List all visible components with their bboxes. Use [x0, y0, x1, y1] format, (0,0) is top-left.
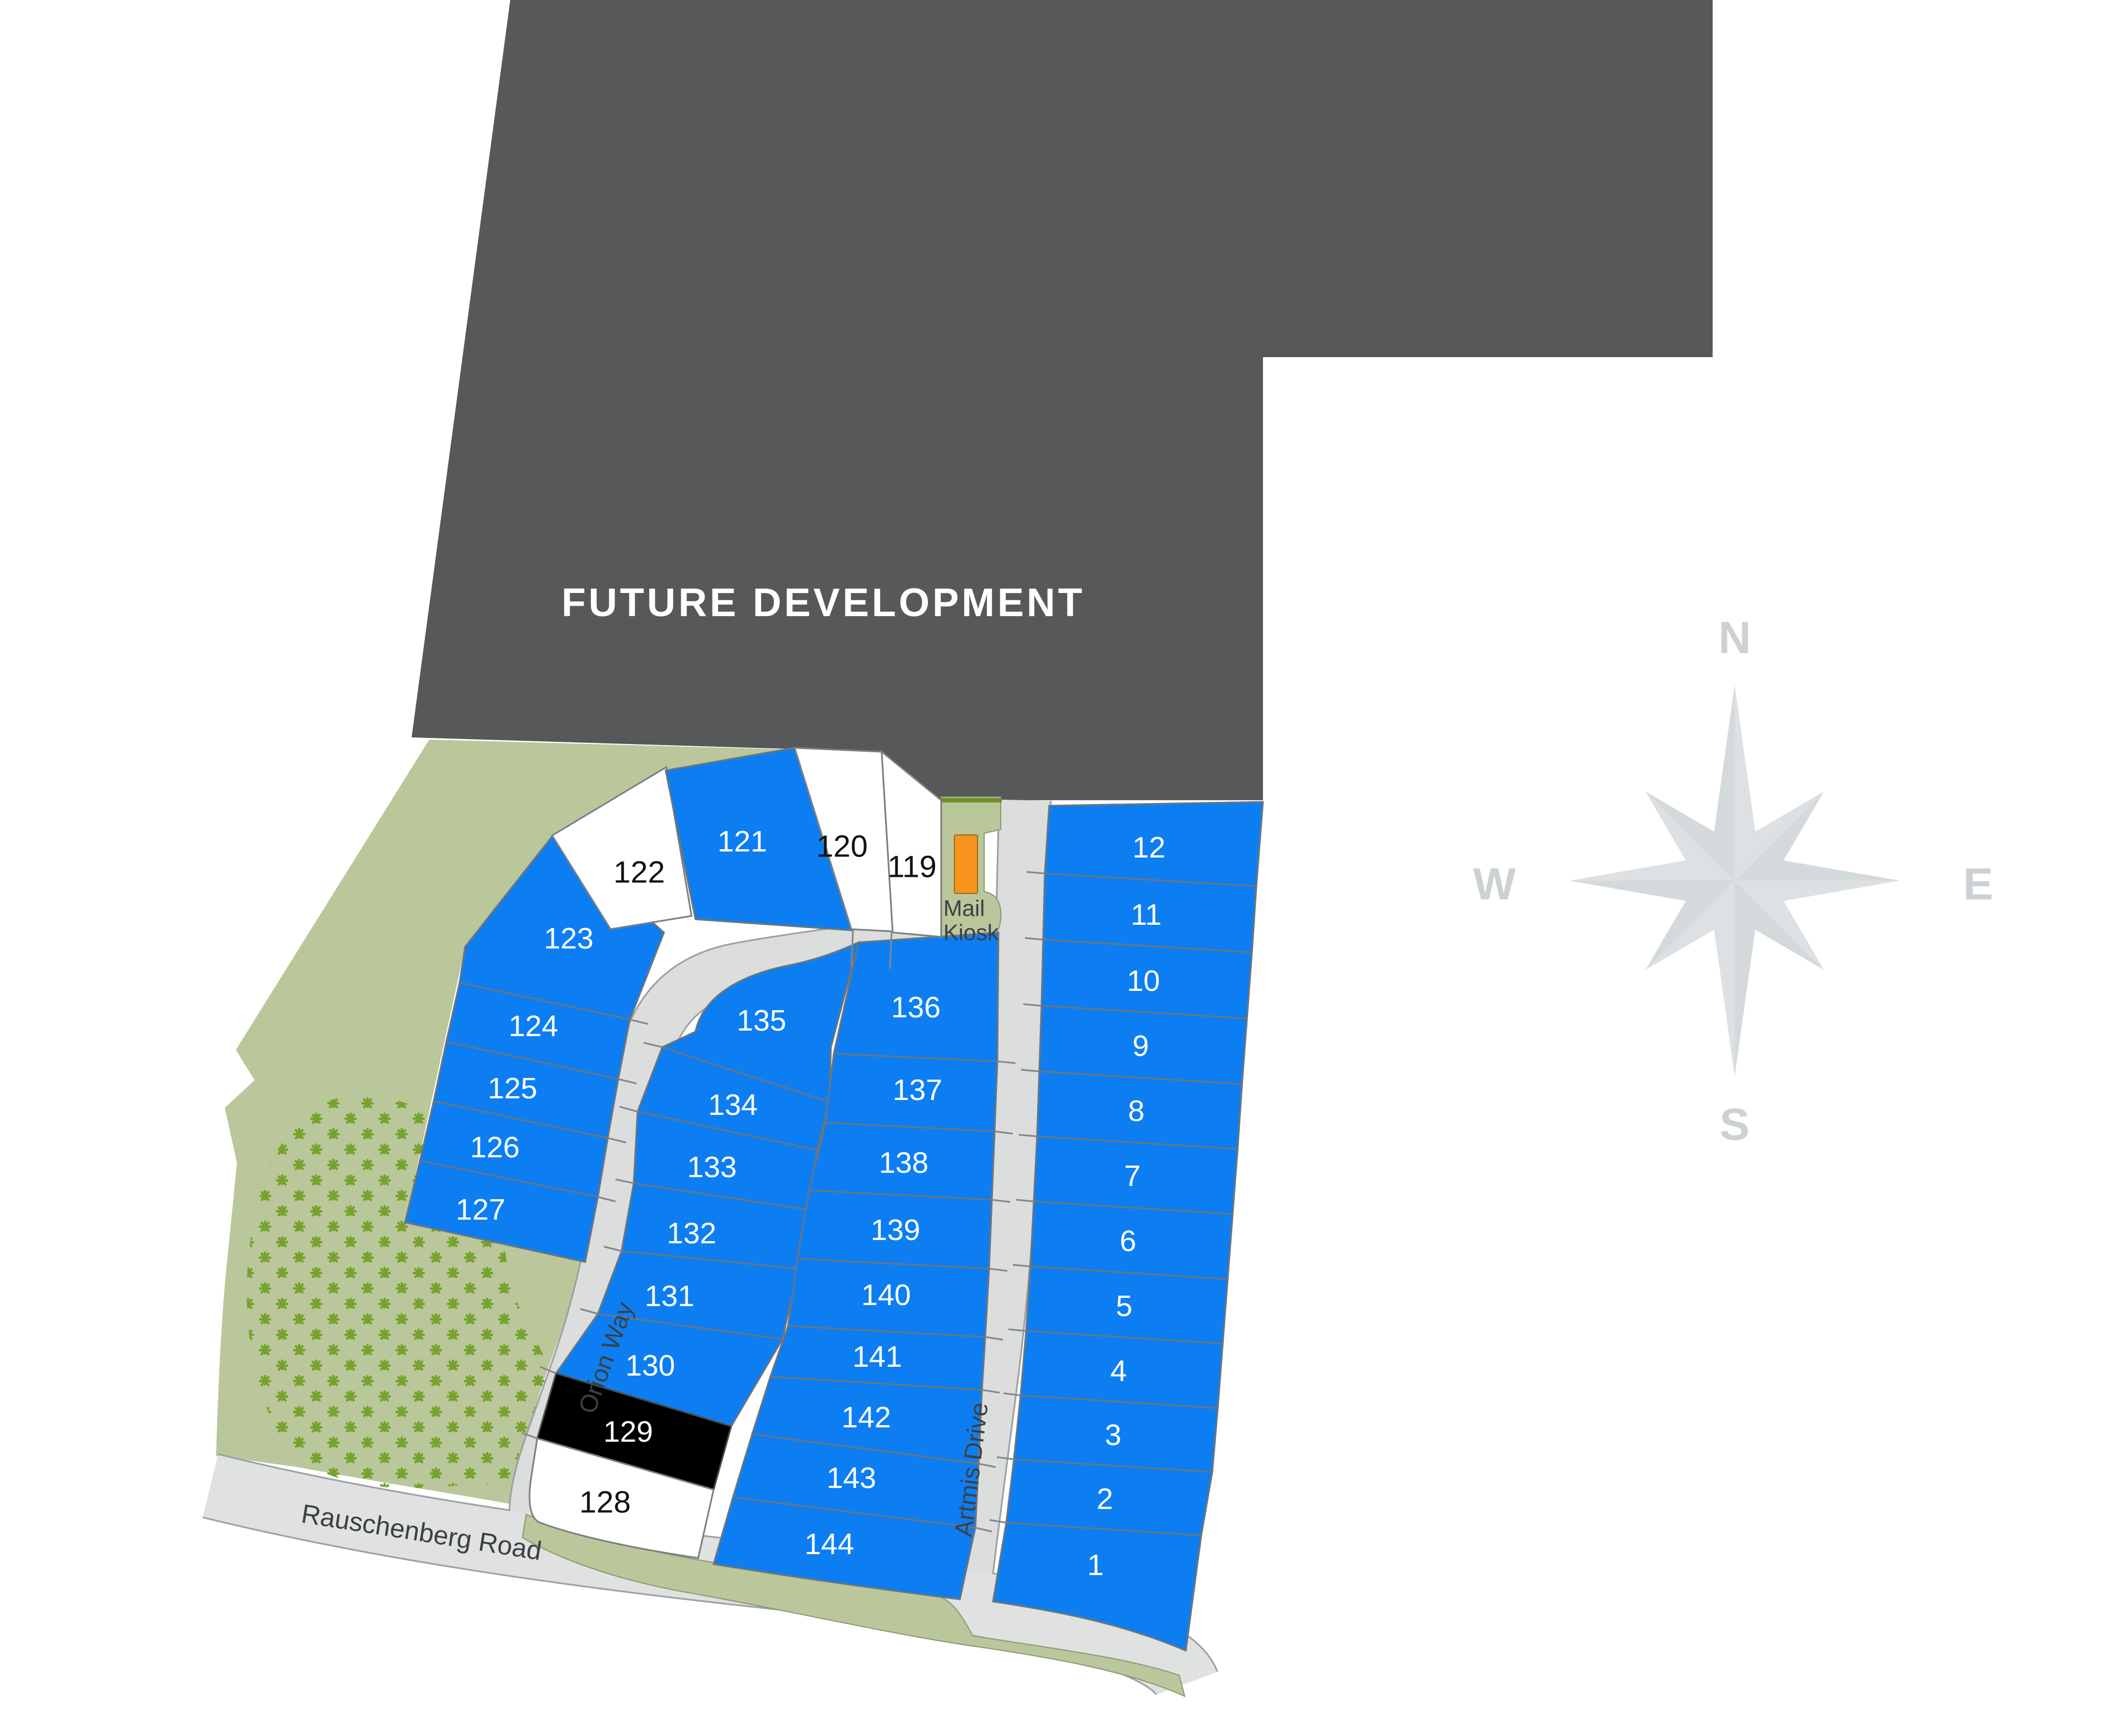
lot-120-label: 120: [816, 829, 867, 864]
lot-134-label: 134: [708, 1088, 758, 1122]
lot-12-label: 12: [1132, 831, 1165, 864]
lot-125-label: 125: [488, 1072, 537, 1105]
lot-2-label: 2: [1097, 1482, 1113, 1516]
mail-kiosk-marker[interactable]: [954, 835, 978, 893]
mail-kiosk-label-line2: Kiosk: [943, 920, 999, 945]
lot-126-label: 126: [470, 1131, 520, 1164]
compass-east-label: E: [1963, 859, 1994, 909]
lot-131-label: 131: [645, 1280, 694, 1313]
compass-west-label: W: [1473, 859, 1516, 909]
lot-141-label: 141: [852, 1340, 902, 1373]
lot-7-label: 7: [1124, 1160, 1141, 1193]
lot-136-label: 136: [891, 991, 941, 1024]
lot-133-label: 133: [687, 1151, 737, 1184]
lot-122-label: 122: [613, 855, 665, 889]
lot-138-label: 138: [879, 1146, 929, 1179]
lot-123-label: 123: [544, 922, 593, 955]
compass-north-label: N: [1718, 613, 1751, 663]
lot-8-label: 8: [1128, 1095, 1145, 1128]
lot-139-label: 139: [871, 1214, 920, 1247]
lot-121-label: 121: [717, 825, 767, 858]
lot-10-label: 10: [1127, 964, 1160, 998]
lot-140-label: 140: [861, 1279, 911, 1312]
lot-132-label: 132: [667, 1217, 716, 1250]
lot-128-label: 128: [579, 1485, 630, 1519]
lot-9-label: 9: [1132, 1029, 1149, 1063]
lot-11-label: 11: [1131, 898, 1162, 931]
lot-3-label: 3: [1105, 1419, 1121, 1452]
lot-124-label: 124: [509, 1010, 558, 1043]
lot-130-label: 130: [625, 1349, 675, 1382]
lot-129-label: 129: [603, 1415, 653, 1448]
lot-135-label: 135: [737, 1004, 786, 1037]
lot-4-label: 4: [1110, 1355, 1127, 1388]
future-development-label: FUTURE DEVELOPMENT: [562, 581, 1085, 625]
lot-144-label: 144: [805, 1528, 854, 1561]
mail-kiosk-label-line1: Mail: [943, 896, 985, 921]
lot-6-label: 6: [1120, 1225, 1136, 1258]
site-plan-map: Mail Kiosk Orion Way Artmis Drive Rausch…: [0, 0, 2116, 1736]
lot-127-label: 127: [456, 1193, 505, 1226]
compass-south-label: S: [1720, 1099, 1750, 1150]
lot-119-label: 119: [887, 849, 936, 884]
lot-142-label: 142: [841, 1401, 891, 1434]
lot-5-label: 5: [1116, 1290, 1132, 1323]
lots-layer: [405, 748, 1263, 1651]
lot-1-label: 1: [1087, 1549, 1104, 1582]
lot-137-label: 137: [893, 1074, 942, 1107]
lot-143-label: 143: [827, 1462, 876, 1495]
